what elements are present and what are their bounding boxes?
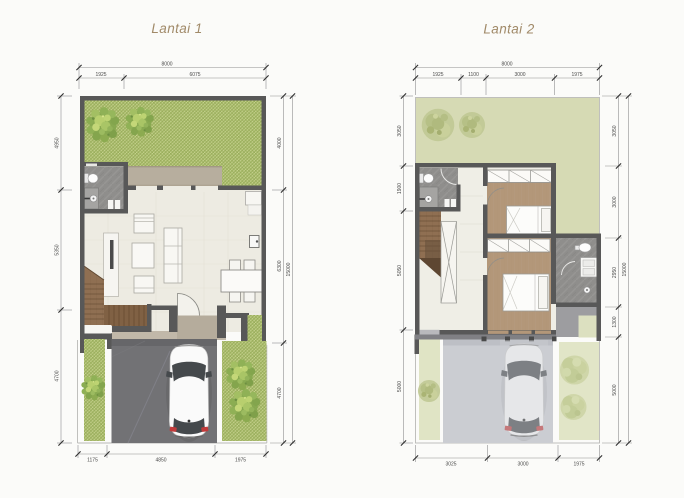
svg-text:3050: 3050 bbox=[397, 125, 403, 136]
svg-text:1100: 1100 bbox=[468, 72, 479, 78]
svg-text:5000: 5000 bbox=[612, 384, 618, 395]
svg-text:1300: 1300 bbox=[612, 316, 618, 327]
svg-text:1925: 1925 bbox=[432, 72, 443, 78]
svg-text:1900: 1900 bbox=[397, 183, 403, 194]
svg-text:1975: 1975 bbox=[235, 458, 246, 464]
svg-text:15000: 15000 bbox=[622, 262, 628, 276]
svg-text:1175: 1175 bbox=[87, 458, 98, 464]
svg-text:1975: 1975 bbox=[573, 462, 584, 468]
svg-text:1925: 1925 bbox=[95, 72, 106, 78]
svg-text:3000: 3000 bbox=[514, 72, 525, 78]
svg-text:4850: 4850 bbox=[155, 458, 166, 464]
svg-text:4700: 4700 bbox=[277, 387, 283, 398]
svg-text:4950: 4950 bbox=[55, 137, 61, 148]
svg-text:1975: 1975 bbox=[571, 72, 582, 78]
svg-text:3025: 3025 bbox=[445, 462, 456, 468]
svg-text:5350: 5350 bbox=[55, 244, 61, 255]
svg-text:2950: 2950 bbox=[612, 267, 618, 278]
svg-text:Lantai 1: Lantai 1 bbox=[151, 21, 202, 36]
svg-text:4700: 4700 bbox=[55, 370, 61, 381]
svg-text:4000: 4000 bbox=[277, 137, 283, 148]
svg-text:Lantai 2: Lantai 2 bbox=[483, 22, 534, 37]
svg-text:6075: 6075 bbox=[189, 72, 200, 78]
svg-text:6300: 6300 bbox=[277, 260, 283, 271]
svg-text:8000: 8000 bbox=[161, 62, 172, 68]
svg-text:5000: 5000 bbox=[397, 381, 403, 392]
svg-text:3000: 3000 bbox=[517, 462, 528, 468]
svg-text:5050: 5050 bbox=[397, 265, 403, 276]
svg-text:3050: 3050 bbox=[612, 125, 618, 136]
svg-text:8000: 8000 bbox=[501, 62, 512, 68]
svg-text:15000: 15000 bbox=[286, 262, 292, 276]
svg-text:3000: 3000 bbox=[612, 196, 618, 207]
